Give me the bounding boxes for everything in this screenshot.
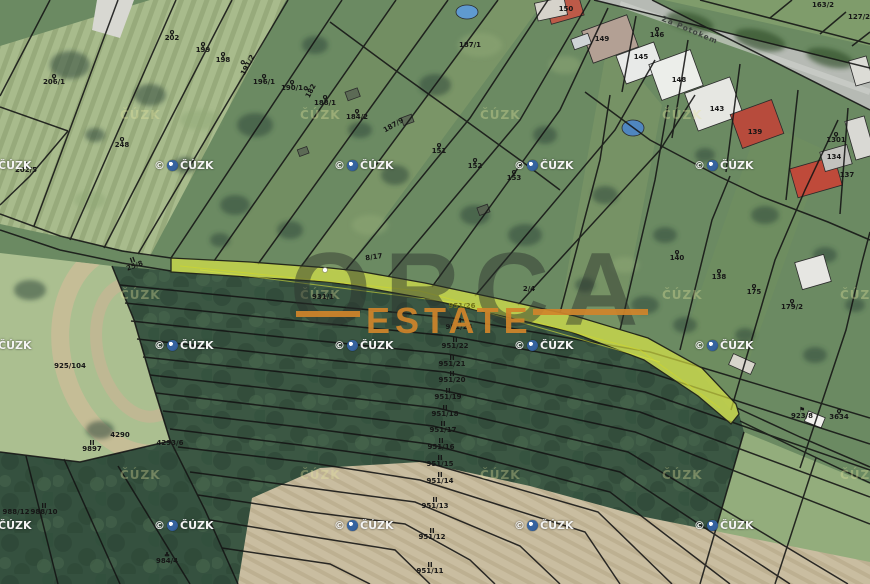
aerial-basemap (0, 0, 870, 584)
survey-point-marker (323, 268, 328, 273)
cadastral-map-view[interactable]: ČÚZKČÚZKČÚZKČÚZKČÚZKČÚZKČÚZKČÚZKČÚZKČÚZK… (0, 0, 870, 584)
